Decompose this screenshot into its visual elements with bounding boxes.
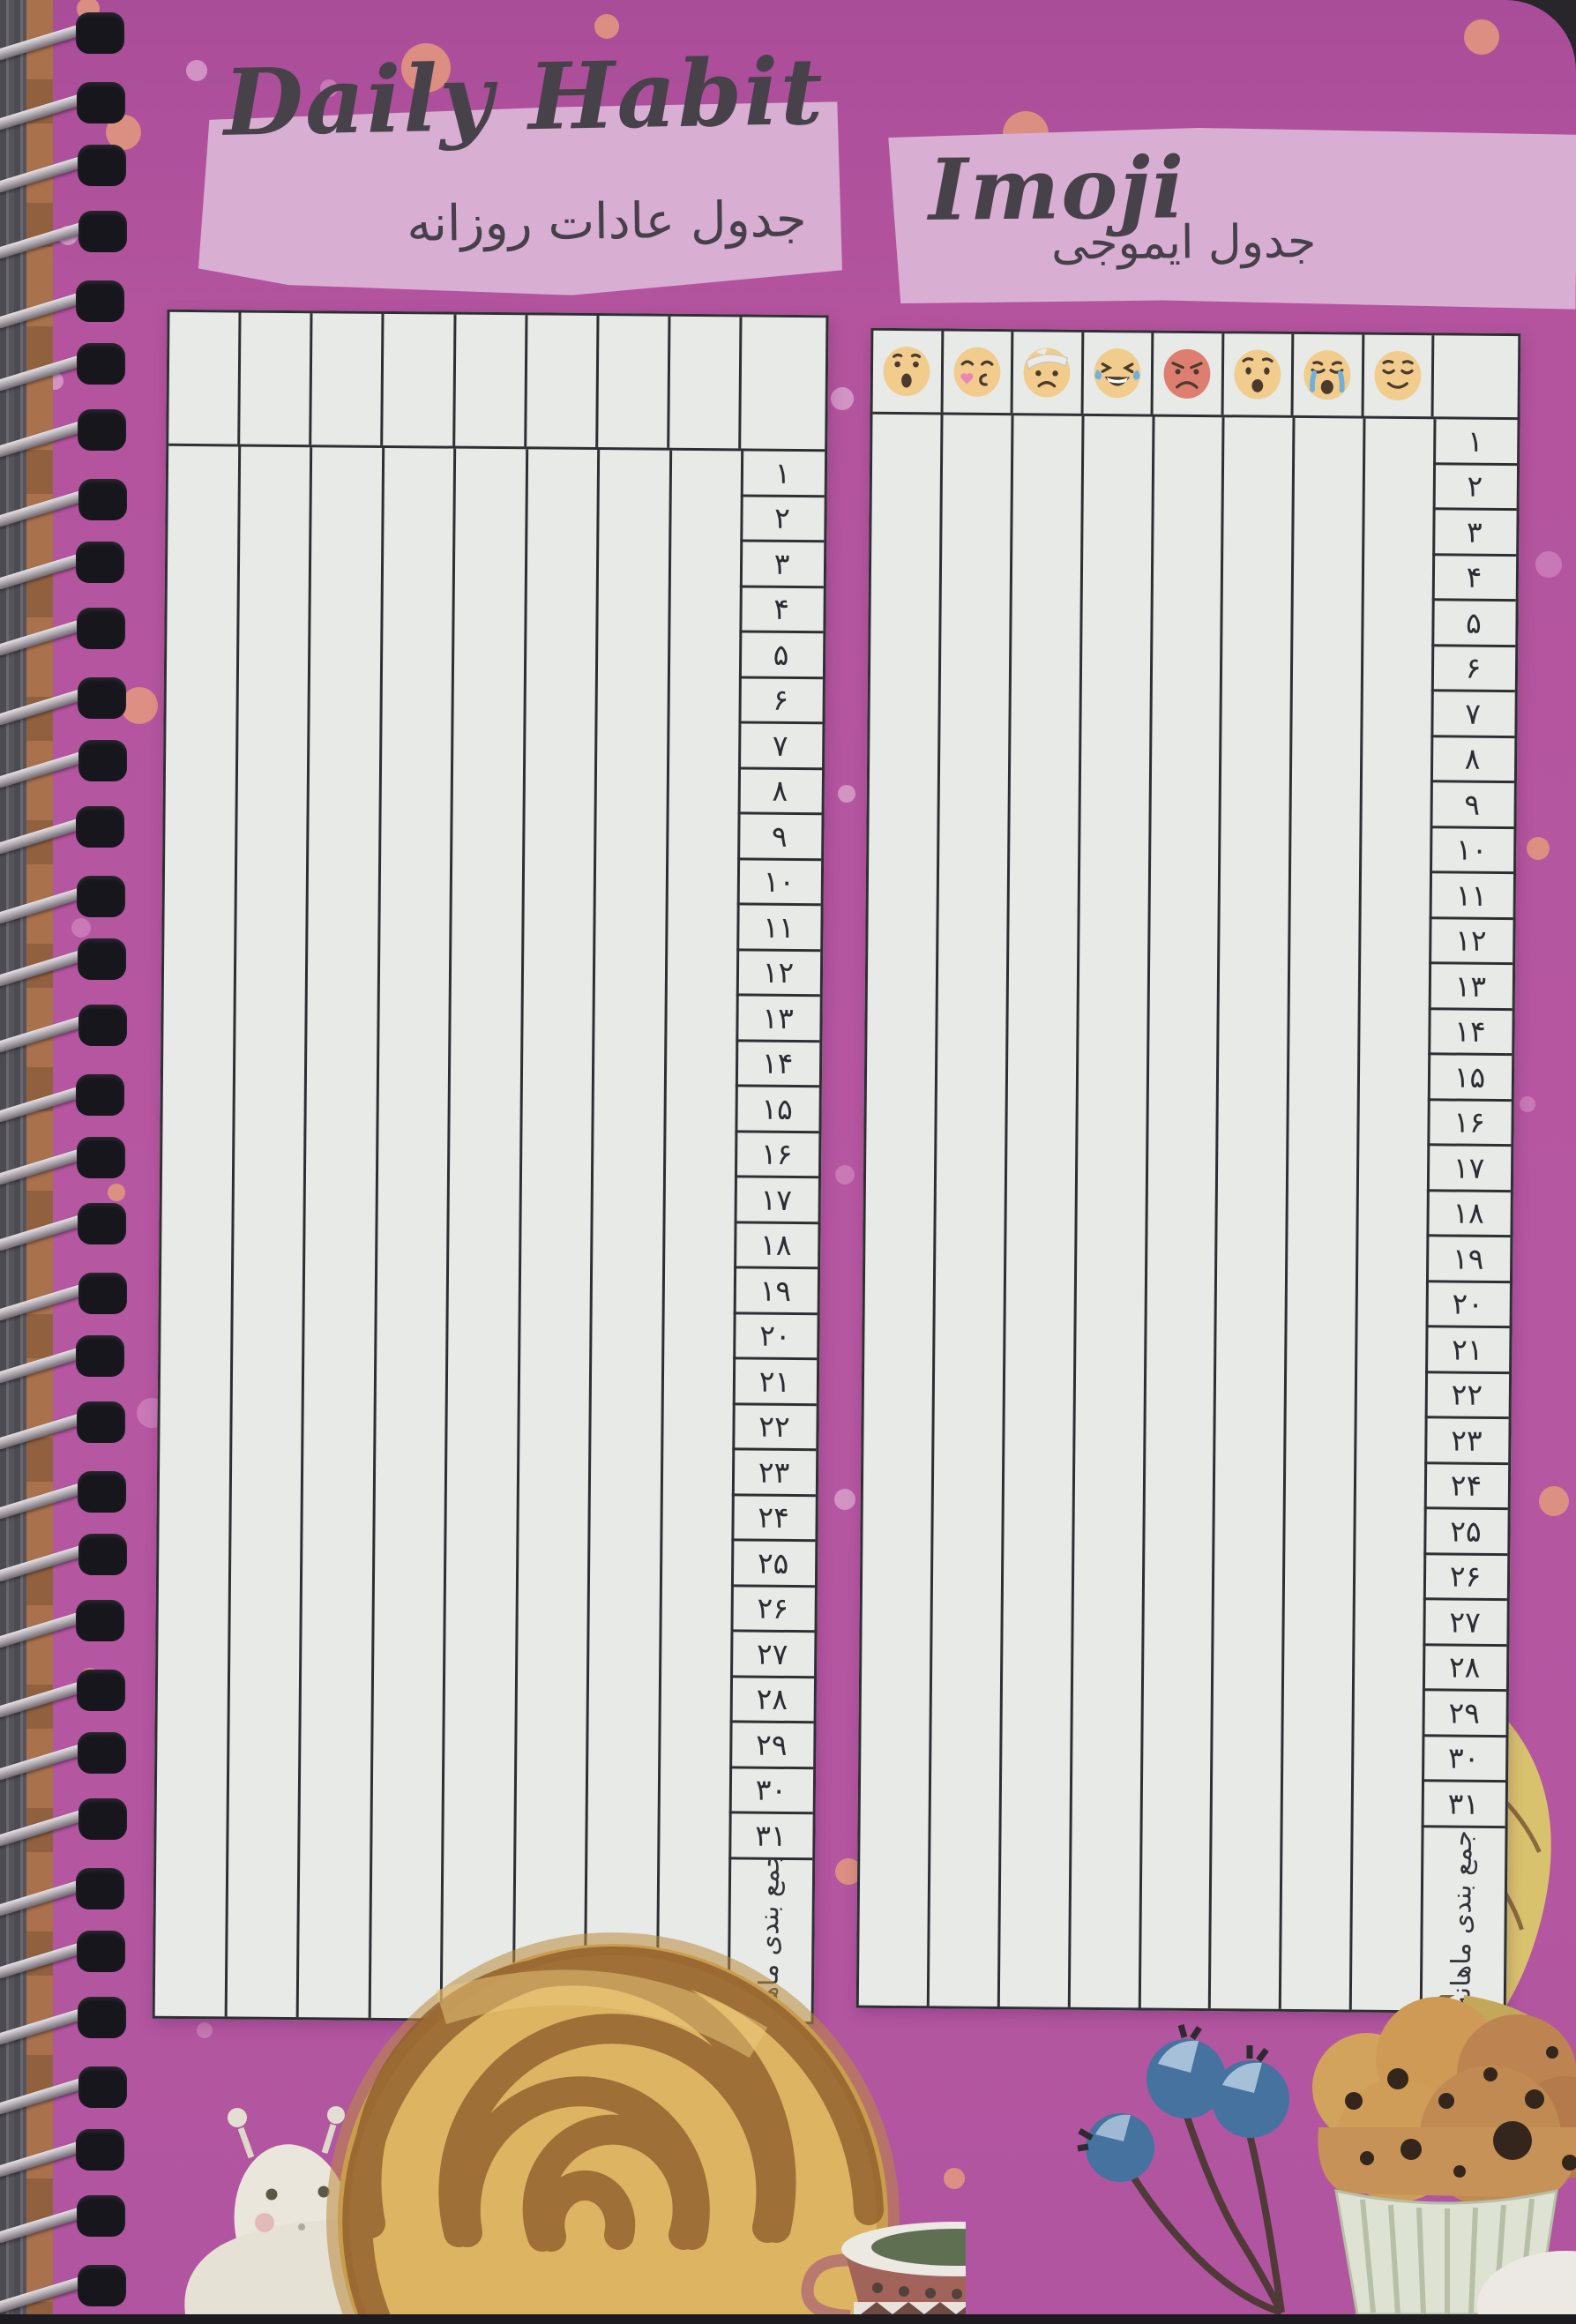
spiral-hole xyxy=(78,740,127,781)
day-number-cell: ۳ xyxy=(1432,510,1516,556)
day-number-cell: ۷ xyxy=(738,723,822,769)
day-number-cell: ۲۰ xyxy=(733,1314,817,1360)
emoji-header-row xyxy=(873,331,1519,420)
day-number-cell: ۱۷ xyxy=(1427,1146,1511,1192)
daily-habit-table: ۱۲۳۴۵۶۷۸۹۱۰۱۱۱۲۱۳۱۴۱۵۱۶۱۷۱۸۱۹۲۰۲۱۲۲۲۳۲۴۲… xyxy=(153,310,829,2024)
spiral-hole xyxy=(76,1074,124,1116)
habit-header-row xyxy=(168,312,825,452)
spiral-hole xyxy=(78,1732,126,1774)
face-with-head-bandage-icon xyxy=(1013,332,1084,414)
day-number-cell: ۲ xyxy=(740,497,824,542)
habit-column-header xyxy=(168,312,241,445)
day-number-cell: ۱۹ xyxy=(734,1268,818,1314)
day-number-cell: ۳۰ xyxy=(1422,1737,1505,1782)
day-number-cell: ۱۴ xyxy=(736,1042,819,1087)
spiral-hole xyxy=(76,2129,124,2171)
day-number-cell: ۱۱ xyxy=(1430,873,1513,919)
day-number-cell: ۲۶ xyxy=(1423,1555,1507,1601)
spiral-hole xyxy=(78,677,126,719)
day-number-cell: ۵ xyxy=(739,632,823,678)
spiral-hole xyxy=(78,409,126,451)
day-number-cell: ۱۵ xyxy=(1428,1055,1512,1101)
day-number-cell: ۱۴ xyxy=(1428,1010,1512,1056)
angry-face-icon xyxy=(1154,333,1224,415)
spiral-hole xyxy=(77,608,125,649)
day-number-cell: ۲۱ xyxy=(1425,1327,1509,1373)
spiral-hole xyxy=(77,82,125,123)
face-with-tears-of-joy-icon xyxy=(1083,333,1154,415)
grid-column xyxy=(299,447,385,2018)
day-number-column: ۱۲۳۴۵۶۷۸۹۱۰۱۱۱۲۱۳۱۴۱۵۱۶۱۷۱۸۱۹۲۰۲۱۲۲۲۳۲۴۲… xyxy=(1420,419,1518,2011)
spiral-hole xyxy=(76,542,124,583)
spiral-hole xyxy=(78,2265,126,2306)
imoji-subtitle-fa: جدول ایموجی xyxy=(1104,215,1317,270)
spiral-hole xyxy=(78,211,127,252)
day-number-cell: ۱۳ xyxy=(1429,964,1513,1010)
day-number-cell: ۲۳ xyxy=(732,1450,816,1496)
spiral-hole xyxy=(76,12,124,54)
habit-column-header xyxy=(240,313,312,445)
number-column-header xyxy=(1434,335,1519,417)
grid-column xyxy=(586,450,672,2021)
habit-column-header xyxy=(455,315,527,447)
habit-column-header xyxy=(598,316,670,448)
spiral-hole xyxy=(78,145,126,186)
day-number-cell: ۳۱ xyxy=(1422,1782,1505,1827)
spiral-hole xyxy=(76,806,124,848)
loudly-crying-face-icon xyxy=(1294,334,1364,416)
kissing-face-with-heart-icon xyxy=(943,331,1013,413)
grid-column xyxy=(155,446,241,2017)
day-number-cell: ۹ xyxy=(737,814,821,860)
day-number-cell: ۲۸ xyxy=(730,1678,814,1723)
spiral-hole xyxy=(77,876,125,917)
day-number-cell: ۱۶ xyxy=(735,1132,818,1178)
day-number-column: ۱۲۳۴۵۶۷۸۹۱۰۱۱۱۲۱۳۱۴۱۵۱۶۱۷۱۸۱۹۲۰۲۱۲۲۲۳۲۴۲… xyxy=(728,451,825,2021)
spiral-hole xyxy=(78,1273,127,1314)
day-number-cell: ۲۴ xyxy=(1424,1464,1508,1510)
day-number-cell: ۱۶ xyxy=(1427,1101,1511,1147)
day-number-cell: ۱۳ xyxy=(736,996,819,1042)
habit-grid-columns xyxy=(155,446,742,2021)
day-number-cell: ۱۷ xyxy=(735,1177,818,1223)
day-number-cell: ۱ xyxy=(1433,419,1517,465)
spiral-hole xyxy=(76,1868,124,1909)
hushed-face-icon xyxy=(873,331,944,413)
spiral-hole xyxy=(76,1600,124,1641)
day-number-cell: ۲۵ xyxy=(731,1541,815,1587)
day-number-cell: ۱۸ xyxy=(734,1223,818,1269)
grid-column xyxy=(227,447,312,2018)
day-number-cell: ۲۶ xyxy=(730,1587,814,1633)
day-number-cell: ۱۸ xyxy=(1426,1192,1510,1237)
day-number-cell: ۸ xyxy=(1430,737,1514,783)
spiral-hole xyxy=(78,1798,127,1840)
spiral-hole xyxy=(78,2066,127,2108)
habit-column-header xyxy=(311,313,384,445)
day-number-cell: ۲۷ xyxy=(730,1632,814,1678)
day-number-cell: ۱۵ xyxy=(735,1087,818,1132)
day-number-cell: ۵ xyxy=(1431,601,1515,646)
day-number-cell: ۲۰ xyxy=(1426,1282,1510,1328)
habit-column-header xyxy=(384,314,456,446)
day-number-cell: ۲۳ xyxy=(1424,1418,1508,1464)
spiral-hole xyxy=(77,1670,125,1711)
day-number-cell: ۴ xyxy=(1432,556,1516,602)
spiral-hole xyxy=(78,1997,126,2038)
blueberries-and-muffin-illustration xyxy=(997,1995,1576,2314)
day-number-cell: ۲۵ xyxy=(1423,1509,1507,1555)
spiral-hole xyxy=(78,938,126,980)
spiral-hole xyxy=(77,343,125,385)
day-number-cell: ۴ xyxy=(739,587,823,633)
day-number-cell: ۱۰ xyxy=(737,860,821,906)
day-number-cell: ۱۲ xyxy=(736,951,820,997)
monthly-summary-cell: جمع بندی ماهانه xyxy=(1420,1827,1505,2011)
number-column-header xyxy=(741,317,825,449)
day-number-cell: ۱۹ xyxy=(1426,1237,1510,1282)
day-number-cell: ۲۱ xyxy=(733,1359,817,1405)
day-number-cell: ۲۷ xyxy=(1423,1600,1506,1646)
day-number-cell: ۲۹ xyxy=(1422,1691,1505,1737)
grid-column xyxy=(443,449,528,2020)
grid-column xyxy=(370,448,456,2019)
day-number-cell: ۲۲ xyxy=(732,1405,816,1451)
day-number-cell: ۹ xyxy=(1430,782,1513,828)
day-number-cell: ۶ xyxy=(738,678,822,724)
chocolate-chip-muffin xyxy=(1312,1995,1576,2314)
day-number-cell: ۱۲ xyxy=(1429,919,1513,965)
notebook-photo: { "left_section": { "title_en": "Daily H… xyxy=(0,0,1576,2314)
day-number-cell: ۳ xyxy=(740,542,824,587)
spiral-hole xyxy=(78,1203,126,1244)
day-number-cell: ۱۱ xyxy=(736,905,820,951)
spiral-hole xyxy=(78,1471,126,1513)
cinnamon-roll xyxy=(338,1944,888,2314)
habit-column-header xyxy=(669,317,742,449)
spiral-hole xyxy=(76,280,124,322)
day-number-cell: ۸ xyxy=(738,769,822,815)
spiral-hole xyxy=(76,1335,124,1377)
blueberries xyxy=(1078,2025,1289,2313)
day-number-cell: ۱ xyxy=(741,451,825,497)
spiral-hole xyxy=(78,1534,127,1575)
emoji-table: ۱۲۳۴۵۶۷۸۹۱۰۱۱۱۲۱۳۱۴۱۵۱۶۱۷۱۸۱۹۲۰۲۱۲۲۲۳۲۴۲… xyxy=(856,328,1521,2014)
spiral-hole xyxy=(78,479,127,520)
spiral-hole xyxy=(77,1931,125,1972)
spiral-hole xyxy=(77,1137,125,1178)
anguished-face-icon xyxy=(1223,333,1294,415)
habit-column-header xyxy=(527,315,599,447)
day-number-cell: ۲۹ xyxy=(729,1722,813,1768)
day-number-cell: ۳۰ xyxy=(729,1768,813,1814)
day-number-cell: ۲ xyxy=(1433,465,1517,511)
spiral-hole xyxy=(77,1401,125,1443)
emoji-grid-columns xyxy=(859,415,1434,2010)
spiral-hole xyxy=(77,2195,125,2237)
day-number-cell: ۱۰ xyxy=(1430,828,1513,874)
spiral-hole xyxy=(78,1005,127,1046)
daily-habit-title: Daily Habit xyxy=(223,37,825,157)
day-number-cell: ۲۸ xyxy=(1423,1646,1506,1692)
grid-column xyxy=(514,449,600,2020)
day-number-cell: ۷ xyxy=(1430,691,1514,737)
day-number-cell: ۳۱ xyxy=(728,1813,812,1859)
day-number-cell: ۲۲ xyxy=(1425,1373,1509,1419)
daily-habit-subtitle-fa: جدول عادات روزانه xyxy=(379,191,834,253)
day-number-cell: ۲۴ xyxy=(731,1496,815,1542)
day-number-cell: ۶ xyxy=(1431,646,1515,692)
relieved-face-icon xyxy=(1363,335,1434,417)
snail-and-cinnamon-roll-illustration xyxy=(71,1928,966,2314)
